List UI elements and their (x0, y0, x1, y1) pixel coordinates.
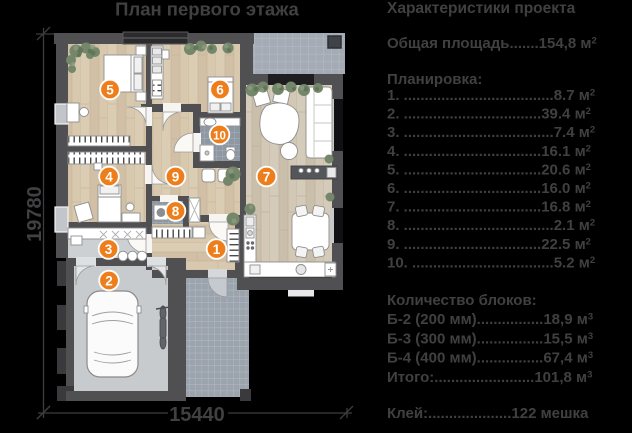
svg-text:Б-2 (200 мм)................18: Б-2 (200 мм)................18,9 м3 (387, 311, 593, 328)
svg-text:Итого:........................: Итого:........................101,8 м3 (387, 369, 592, 386)
svg-text:1. ...........................: 1. ....................................8… (387, 87, 595, 104)
svg-text:Общая площадь.......154,8 м2: Общая площадь.......154,8 м2 (387, 35, 597, 52)
svg-text:9. ...........................: 9. .................................22.5… (387, 236, 591, 253)
svg-text:7. ...........................: 7. .................................16.8… (387, 199, 591, 216)
svg-text:4: 4 (105, 169, 113, 184)
svg-text:10. ..........................: 10. ..................................5.… (387, 254, 595, 271)
svg-text:4. ...........................: 4. .................................16.1… (387, 143, 591, 160)
svg-text:5. ...........................: 5. .................................20.6… (387, 161, 591, 178)
svg-text:Клей:....................122 м: Клей:....................122 мешка (387, 405, 589, 422)
svg-text:9: 9 (172, 169, 180, 184)
svg-text:5: 5 (106, 82, 114, 97)
svg-text:6. ...........................: 6. .................................16.0… (387, 180, 591, 197)
svg-text:2: 2 (105, 273, 113, 288)
svg-text:Планировка:: Планировка: (387, 71, 482, 88)
svg-text:Б-4 (400 мм)................67: Б-4 (400 мм)................67,4 м3 (387, 350, 593, 367)
svg-text:2. ...........................: 2. .................................39.4… (387, 106, 591, 123)
svg-text:3. ...........................: 3. ....................................7… (387, 124, 595, 141)
svg-text:1: 1 (213, 242, 221, 257)
svg-text:Б-3 (300 мм)................15: Б-3 (300 мм)................15,5 м3 (387, 330, 593, 347)
svg-text:7: 7 (263, 169, 271, 184)
svg-text:Количество блоков:: Количество блоков: (387, 292, 537, 309)
svg-text:Характеристики проекта: Характеристики проекта (387, 0, 576, 17)
svg-text:15440: 15440 (169, 404, 225, 426)
svg-text:План первого этажа: План первого этажа (115, 0, 299, 20)
svg-text:8. ...........................: 8. ....................................2… (387, 217, 595, 234)
svg-text:6: 6 (216, 82, 224, 97)
svg-text:19780: 19780 (24, 186, 46, 242)
svg-text:10: 10 (213, 130, 226, 142)
svg-text:3: 3 (105, 242, 113, 257)
svg-text:8: 8 (172, 204, 180, 219)
